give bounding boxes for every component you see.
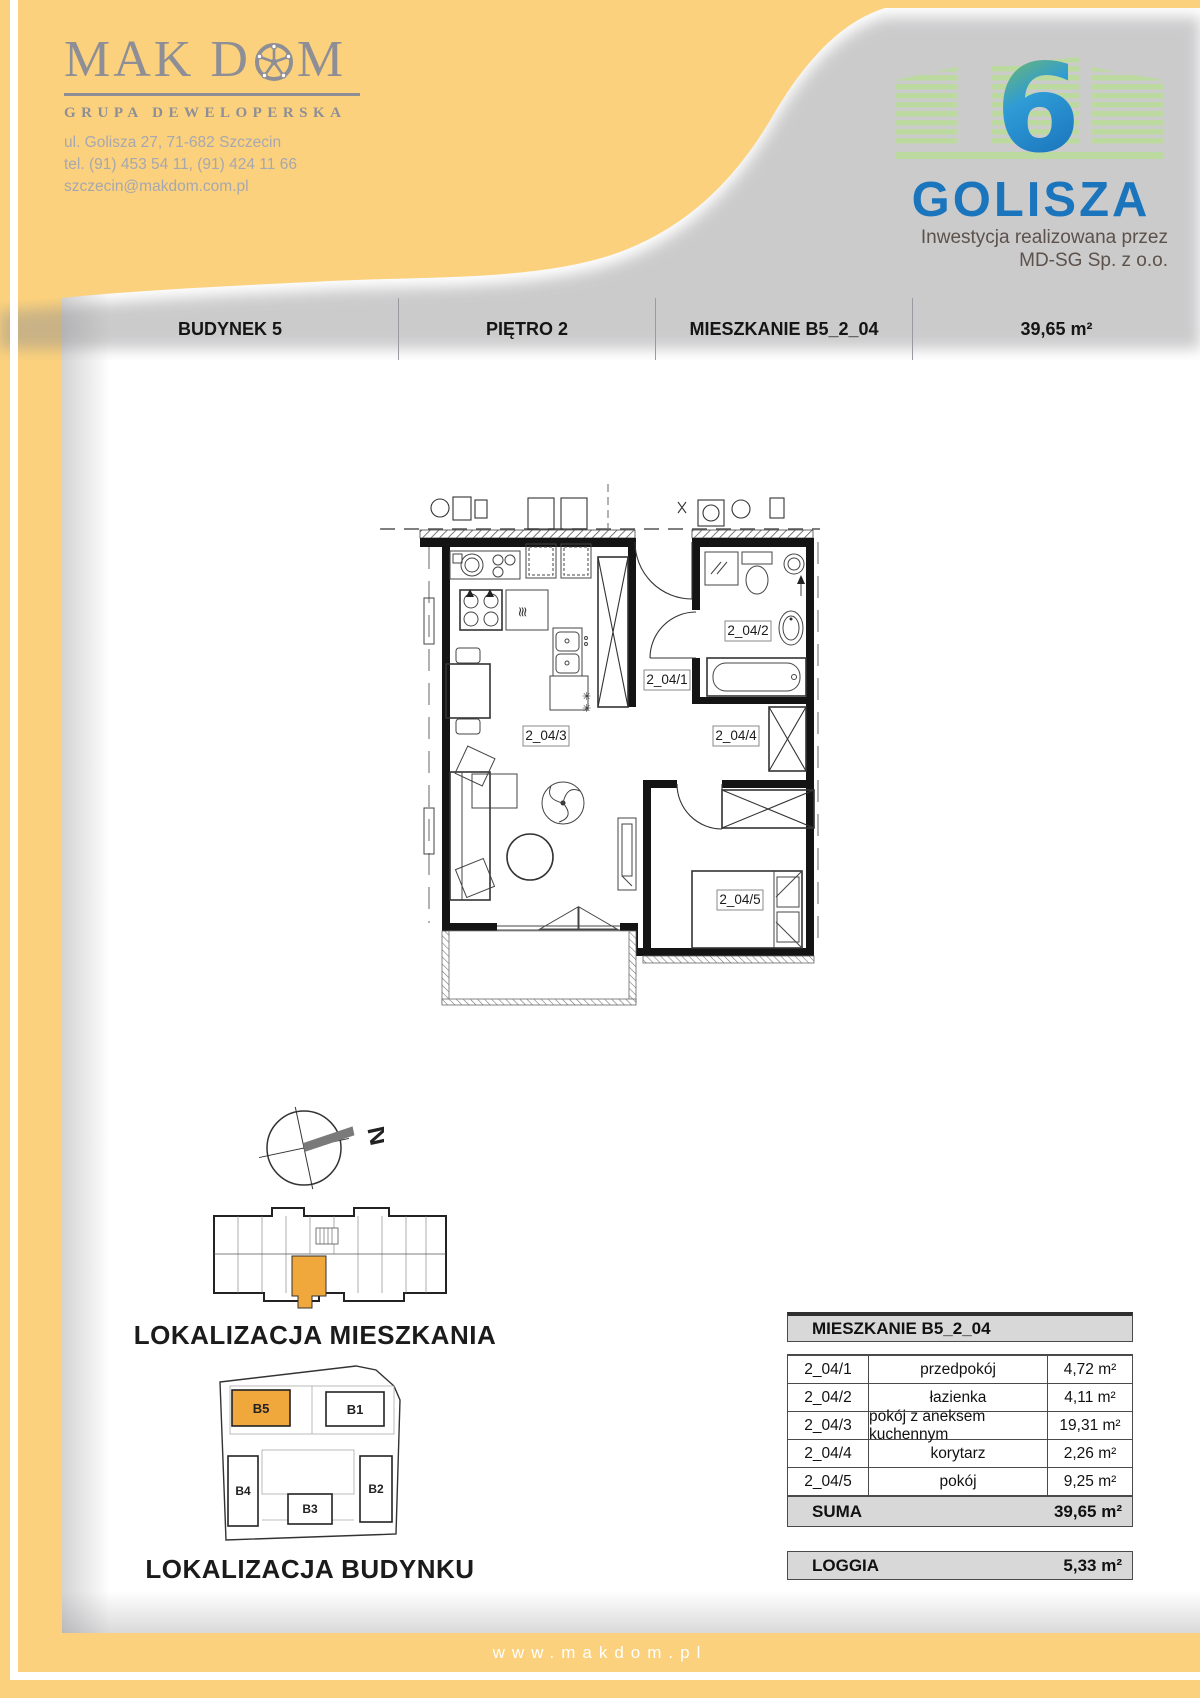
- building-stripes-left: [895, 66, 957, 144]
- building-stripes-right: [1091, 66, 1163, 144]
- building-b4-label: B4: [235, 1484, 251, 1498]
- brand-address: ul. Golisza 27, 71-682 Szczecin: [64, 132, 360, 154]
- makdom-logo: MAK D M: [64, 34, 360, 86]
- apartment-card-page: MAK D M GRUPA DEWELOPERS: [0, 0, 1200, 1698]
- apartment-locator-title: LOKALIZACJA MIESZKANIA: [125, 1320, 505, 1351]
- room-label-5: 2_04/5: [719, 892, 760, 907]
- project-note-line1: Inwestycja realizowana przez: [810, 226, 1168, 249]
- row-name: pokój z aneksem kuchennym: [868, 1412, 1048, 1439]
- compass-north-letter: N: [361, 1123, 384, 1148]
- table-row: 2_04/1 przedpokój 4,72 m²: [788, 1356, 1132, 1384]
- svg-text:≋: ≋: [515, 606, 531, 618]
- brand-subtitle: GRUPA DEWELOPERSKA: [64, 105, 360, 122]
- footer-band-shadow: [62, 1591, 1200, 1633]
- suma-label: SUMA: [788, 1502, 862, 1522]
- building-b2-label: B2: [368, 1482, 384, 1496]
- developer-brand-block: MAK D M GRUPA DEWELOPERS: [64, 34, 360, 198]
- room-label-3: 2_04/3: [525, 728, 566, 743]
- svg-text:✳: ✳: [582, 703, 591, 715]
- frame-line-horizontal: [10, 1672, 1200, 1680]
- row-area: 4,11 m²: [1048, 1384, 1132, 1411]
- room-label-2: 2_04/2: [727, 623, 768, 638]
- row-id: 2_04/3: [788, 1412, 868, 1439]
- row-id: 2_04/4: [788, 1440, 868, 1467]
- building-locator-title: LOKALIZACJA BUDYNKU: [120, 1554, 500, 1585]
- table-row: 2_04/5 pokój 9,25 m²: [788, 1468, 1132, 1496]
- header-building: BUDYNEK 5: [62, 298, 399, 360]
- insulation-hatch-left: [420, 530, 635, 538]
- loggia-row: LOGGIA 5,33 m²: [787, 1551, 1133, 1580]
- logo-underline: [64, 93, 360, 96]
- project-note-line2: MD-SG Sp. z o.o.: [810, 249, 1168, 272]
- row-area: 9,25 m²: [1048, 1468, 1132, 1495]
- row-name: pokój: [868, 1468, 1048, 1495]
- upper-neighbour-fragments: [431, 484, 784, 529]
- building-locator-plan: B5 B1 B4 B2 B3: [208, 1360, 416, 1552]
- areas-table: MIESZKANIE B5_2_04 2_04/1 przedpokój 4,7…: [787, 1312, 1133, 1580]
- header-apartment: MIESZKANIE B5_2_04: [656, 298, 913, 360]
- row-id: 2_04/2: [788, 1384, 868, 1411]
- building-b1-label: B1: [347, 1402, 364, 1417]
- brand-phone: tel. (91) 453 54 11, (91) 424 11 66: [64, 154, 360, 176]
- building-b3-label: B3: [302, 1502, 318, 1516]
- left-band-shadow: [62, 250, 110, 1633]
- header-floor: PIĘTRO 2: [399, 298, 656, 360]
- suma-row: SUMA 39,65 m²: [788, 1496, 1132, 1526]
- table-row: 2_04/4 korytarz 2,26 m²: [788, 1440, 1132, 1468]
- row-id: 2_04/1: [788, 1356, 868, 1383]
- floor-outline: [214, 1208, 446, 1301]
- apartment-locator-plan: [204, 1198, 456, 1316]
- header-area: 39,65 m²: [913, 298, 1200, 360]
- apartment-header-strip: BUDYNEK 5 PIĘTRO 2 MIESZKANIE B5_2_04 39…: [62, 298, 1200, 360]
- loggia-label: LOGGIA: [788, 1556, 879, 1576]
- living-room-furniture: [446, 648, 636, 900]
- suma-value: 39,65 m²: [1054, 1502, 1132, 1522]
- wheel-o-icon: [252, 38, 296, 82]
- row-area: 2,26 m²: [1048, 1440, 1132, 1467]
- logo-number-6: 6: [996, 52, 1081, 172]
- makdom-logo-text-right: M: [297, 34, 346, 86]
- row-name: przedpokój: [868, 1356, 1048, 1383]
- kitchen-fixtures: ≋ ✳ ✳: [450, 544, 591, 715]
- frame-line-vertical: [10, 0, 18, 1672]
- makdom-logo-text-left: MAK D: [64, 34, 251, 86]
- project-name: GOLISZA: [893, 172, 1169, 228]
- insulation-hatch-right: [692, 530, 813, 538]
- loggia-value: 5,33 m²: [1063, 1556, 1132, 1576]
- row-name: korytarz: [868, 1440, 1048, 1467]
- room-label-4: 2_04/4: [715, 728, 757, 743]
- room-label-1: 2_04/1: [646, 672, 687, 687]
- svg-text:✳: ✳: [582, 691, 591, 703]
- row-area: 4,72 m²: [1048, 1356, 1132, 1383]
- golisza-logo-graphic: 6: [895, 52, 1167, 172]
- row-id: 2_04/5: [788, 1468, 868, 1495]
- footer-website-link[interactable]: www.makdom.pl: [0, 1643, 1200, 1663]
- loggia: [442, 907, 814, 1005]
- apartment-floor-plan: ≋ ✳ ✳: [380, 478, 820, 1018]
- areas-table-title: MIESZKANIE B5_2_04: [787, 1312, 1133, 1342]
- row-area: 19,31 m²: [1048, 1412, 1132, 1439]
- building-b5-label: B5: [253, 1401, 270, 1416]
- compass-rose: N: [252, 1102, 384, 1198]
- table-row: 2_04/3 pokój z aneksem kuchennym 19,31 m…: [788, 1412, 1132, 1440]
- brand-email[interactable]: szczecin@makdom.com.pl: [64, 176, 360, 198]
